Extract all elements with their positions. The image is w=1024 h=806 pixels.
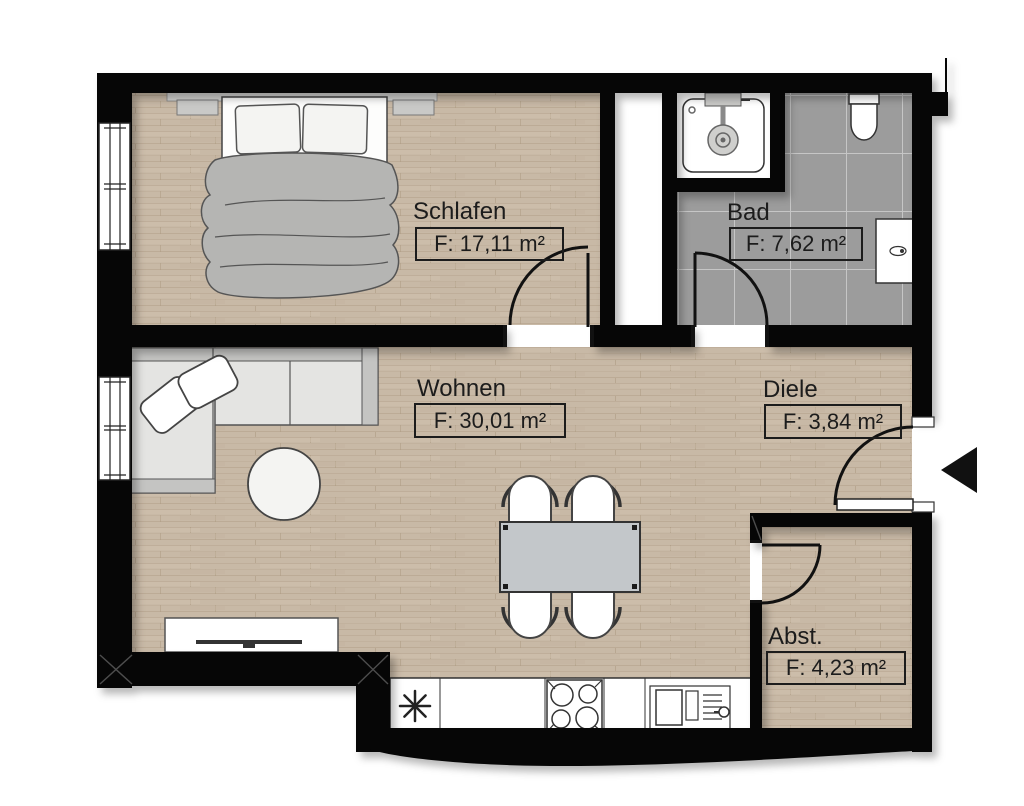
wall-schlafen-wohnen	[132, 325, 505, 347]
bad-label: Bad	[727, 199, 770, 227]
wall-shower-bottom	[662, 178, 785, 192]
entrance-arrow-icon	[941, 447, 977, 493]
wall-abst-top	[750, 513, 912, 527]
nightstand-right	[393, 100, 434, 115]
tv-sideboard-icon	[165, 618, 338, 652]
radiator-icon	[876, 219, 914, 283]
bad-area: F: 7,62 m²	[729, 227, 863, 261]
wall-schlafen-shaft	[600, 93, 615, 347]
freezer-asterisk-icon	[400, 691, 430, 721]
abst-area: F: 4,23 m²	[766, 651, 906, 685]
coffee-table-icon	[248, 448, 320, 520]
wall-top	[97, 73, 932, 93]
wall-shaft-bad	[662, 93, 677, 347]
bed-icon	[201, 97, 398, 298]
window-living	[99, 377, 130, 480]
diele-area: F: 3,84 m²	[764, 404, 902, 439]
toilet-icon	[849, 94, 879, 140]
wall-right-upper	[912, 73, 932, 418]
kitchen-counter	[390, 678, 752, 732]
wall-right-lower	[912, 512, 932, 752]
nightstand-left	[177, 100, 218, 115]
chimney-stub	[932, 92, 948, 116]
schlafen-area: F: 17,11 m²	[415, 227, 564, 261]
schlafen-label: Schlafen	[413, 198, 506, 226]
stove-icon	[547, 680, 602, 732]
chimney-line	[945, 58, 947, 94]
wall-abst-left-lower	[750, 600, 762, 728]
wall-shower-right	[770, 93, 785, 192]
shaft-area	[615, 93, 662, 325]
wall-bottom	[356, 728, 932, 766]
shower-icon	[677, 93, 770, 178]
floor-plan-stage: Schlafen F: 17,11 m² Bad F: 7,62 m² Wohn…	[0, 0, 1024, 806]
wohnen-area: F: 30,01 m²	[414, 403, 566, 438]
abst-label: Abst.	[768, 623, 823, 651]
wall-bad-diele	[767, 325, 912, 347]
window-bedroom	[99, 123, 130, 250]
blanket	[201, 153, 398, 298]
wall-bottom-left	[97, 652, 390, 686]
sink-icon	[650, 686, 730, 731]
diele-label: Diele	[763, 376, 818, 404]
wohnen-label: Wohnen	[417, 375, 506, 403]
